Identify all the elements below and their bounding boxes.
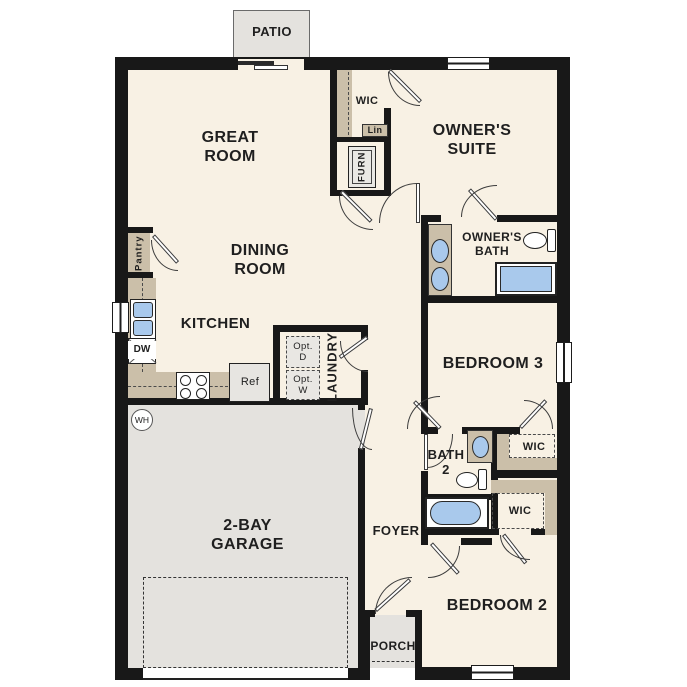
porch-opening — [370, 668, 415, 680]
window-bedroom2 — [471, 665, 514, 680]
label-water-heater: WH — [131, 409, 153, 431]
label-opt-dryer: Opt.D — [287, 338, 319, 366]
label-owners-suite: OWNER'SSUITE — [408, 115, 536, 167]
wall — [461, 538, 492, 545]
bath2-tub-basin — [430, 501, 481, 525]
wall — [273, 325, 368, 332]
bath2-sink — [472, 436, 489, 458]
label-dishwasher: DW — [128, 341, 156, 359]
floor-plan: PATIO GREATROOM WIC Lin FURN OWNER'SSUIT… — [0, 0, 687, 687]
wall — [415, 610, 422, 680]
burner — [180, 388, 191, 399]
wall — [421, 529, 491, 535]
owner-shower-pan — [500, 266, 552, 292]
burner — [196, 375, 207, 386]
label-owner-wic: WIC — [350, 92, 384, 110]
label-dining-room: DININGROOM — [200, 235, 320, 287]
label-porch: PORCH — [370, 637, 416, 655]
label-patio: PATIO — [236, 22, 308, 42]
label-great-room: GREATROOM — [165, 122, 295, 174]
label-garage: 2-BAYGARAGE — [180, 510, 315, 562]
wall — [489, 529, 499, 535]
wall — [421, 222, 428, 296]
label-kitchen: KITCHEN — [158, 312, 273, 336]
bath2-toilet-tank — [478, 469, 487, 490]
owner-toilet-tank — [547, 229, 556, 252]
label-pantry: Pantry — [128, 234, 150, 272]
label-bedroom3: BEDROOM 3 — [428, 352, 558, 376]
label-wic-bedroom2: WIC — [499, 502, 541, 520]
sink-basin — [133, 302, 153, 318]
sink-basin — [133, 320, 153, 336]
label-owners-bath: OWNER'SBATH — [455, 228, 529, 260]
label-laundry: LAUNDRY — [324, 334, 340, 400]
owner-bath-sink — [431, 267, 449, 291]
label-refrigerator: Ref — [231, 373, 269, 391]
label-wic-bedroom3: WIC — [513, 438, 555, 456]
wall — [491, 470, 557, 478]
wall — [273, 332, 280, 405]
porch-edge-dash — [372, 661, 414, 662]
wall — [497, 215, 557, 222]
label-opt-washer: Opt.W — [287, 371, 319, 399]
owner-bath-sink — [431, 239, 449, 263]
window-kitchen — [112, 302, 129, 333]
wic2-shelf — [545, 480, 557, 535]
wall — [330, 70, 337, 195]
patio-slider-panel — [254, 65, 288, 70]
label-foyer: FOYER — [367, 520, 425, 542]
label-bedroom2: BEDROOM 2 — [432, 594, 562, 618]
wall — [337, 137, 384, 142]
garage-door-dash — [143, 577, 348, 668]
wall — [363, 610, 370, 680]
wic3-shelf — [497, 458, 557, 470]
burner — [180, 375, 191, 386]
label-furnace: FURN — [352, 150, 372, 184]
label-bath2: BATH2 — [424, 446, 468, 478]
closet-rod — [348, 72, 349, 135]
garage-door-opening — [143, 668, 348, 680]
burner — [196, 388, 207, 399]
wall — [421, 296, 557, 303]
window-owners-suite — [447, 57, 490, 70]
wall — [384, 108, 391, 195]
window-bedroom3 — [556, 342, 572, 383]
label-linen: Lin — [362, 124, 388, 137]
wall — [421, 215, 441, 222]
